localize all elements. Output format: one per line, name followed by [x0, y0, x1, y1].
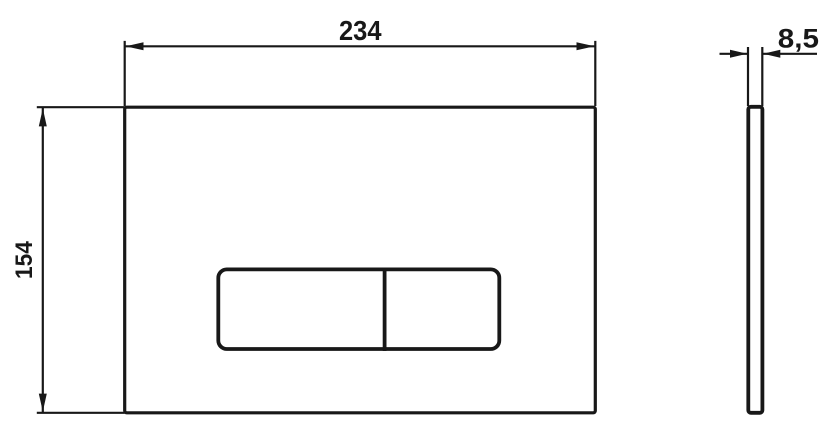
svg-text:8,5: 8,5: [778, 23, 819, 53]
svg-text:154: 154: [11, 241, 38, 279]
svg-text:234: 234: [339, 15, 382, 46]
